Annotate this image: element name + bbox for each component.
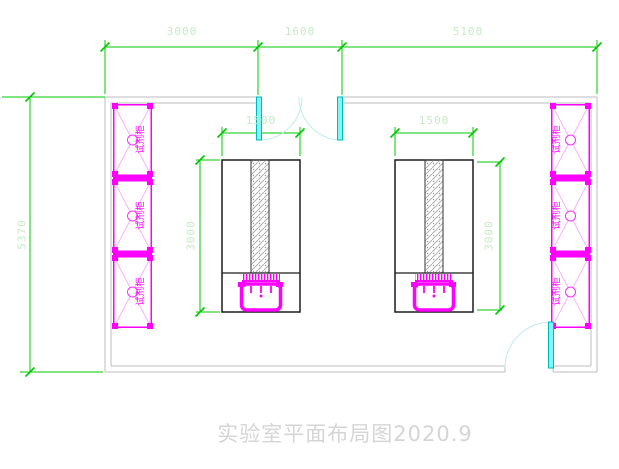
dim-label-top-right-bay: 5100 [438,25,498,38]
reagent-cabinet-label: 试剂柜 [136,265,147,319]
lab-bench-left [222,160,300,312]
dim-label-bench-left-depth: 3000 [185,206,198,266]
reagent-cabinet-label: 试剂柜 [136,189,147,243]
reagent-cabinet-label: 试剂柜 [136,113,147,167]
bench-right-width-dimension [391,127,478,156]
single-door-bottom [505,322,554,368]
dim-label-bench-right-width: 1500 [404,114,464,127]
lab-bench-right [395,160,473,312]
dim-label-bench-right-depth: 3000 [483,206,496,266]
drawing-title: 实验室平面布局图2020.9 [190,418,500,448]
dim-label-left-wall: 5370 [16,205,29,265]
dim-label-bench-left-width: 1500 [231,114,291,127]
floorplan-canvas: 3000 1600 5100 5370 1500 3000 1500 3000 … [0,0,619,469]
top-dimension-chain [101,40,602,95]
reagent-cabinet-label: 试剂柜 [552,265,563,319]
dim-label-top-left-bay: 3000 [152,25,212,38]
reagent-cabinet-label: 试剂柜 [552,113,563,167]
floorplan-linework [0,0,619,469]
dim-label-top-door-bay: 1600 [270,25,330,38]
bench-left-depth-dimension [196,156,221,317]
reagent-cabinet-column-left [112,103,153,329]
reagent-cabinet-label: 试剂柜 [552,189,563,243]
